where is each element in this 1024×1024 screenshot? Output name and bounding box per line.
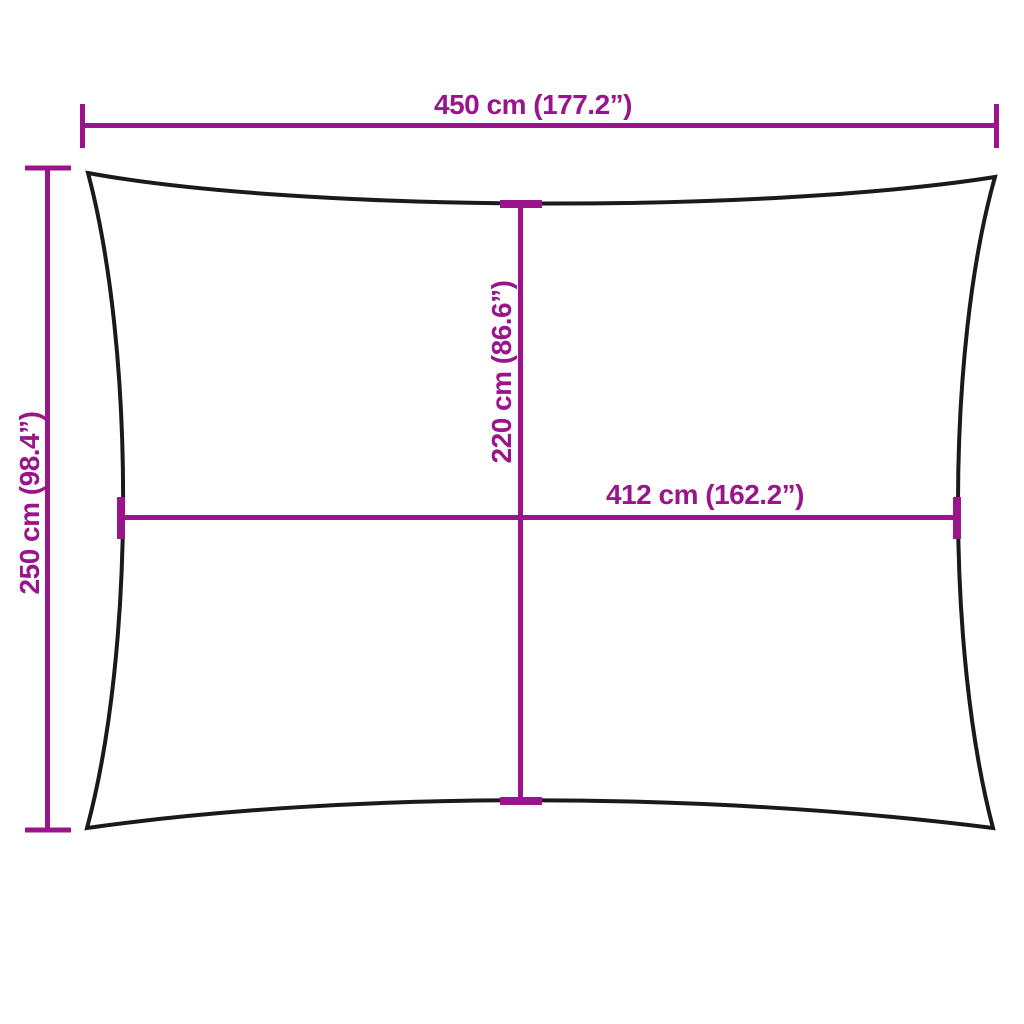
end-tick — [500, 797, 542, 805]
end-tick — [117, 497, 125, 539]
left-height-label: 250 cm (98.4”) — [16, 412, 44, 595]
inner-width-label: 412 cm (162.2”) — [606, 481, 804, 509]
inner-width-dimension — [117, 497, 961, 539]
top-width-label: 450 cm (177.2”) — [434, 91, 632, 119]
sail-outline — [87, 173, 995, 828]
end-tick — [953, 497, 961, 539]
end-tick — [500, 200, 542, 208]
dimension-diagram: 450 cm (177.2”) 250 cm (98.4”) 220 cm (8… — [0, 0, 1024, 1024]
diagram-canvas — [0, 0, 1024, 1024]
inner-height-label: 220 cm (86.6”) — [488, 281, 516, 464]
